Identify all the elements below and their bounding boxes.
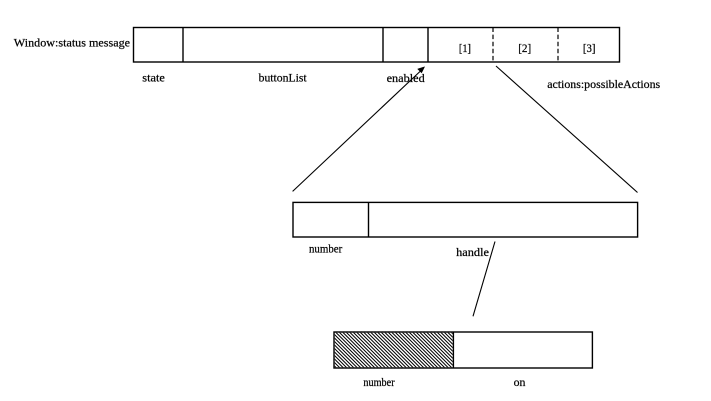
svg-text:on: on — [514, 375, 526, 389]
svg-text:[2]: [2] — [518, 41, 531, 55]
svg-text:[1]: [1] — [459, 41, 471, 55]
svg-text:buttonList: buttonList — [259, 71, 308, 85]
svg-text:actions:possibleActions: actions:possibleActions — [547, 77, 660, 91]
svg-text:Window:status message: Window:status message — [14, 36, 130, 50]
svg-text:[3]: [3] — [583, 41, 596, 55]
svg-text:number: number — [309, 242, 342, 256]
svg-text:handle: handle — [456, 245, 489, 259]
svg-text:number: number — [363, 375, 394, 389]
svg-text:state: state — [142, 71, 165, 85]
